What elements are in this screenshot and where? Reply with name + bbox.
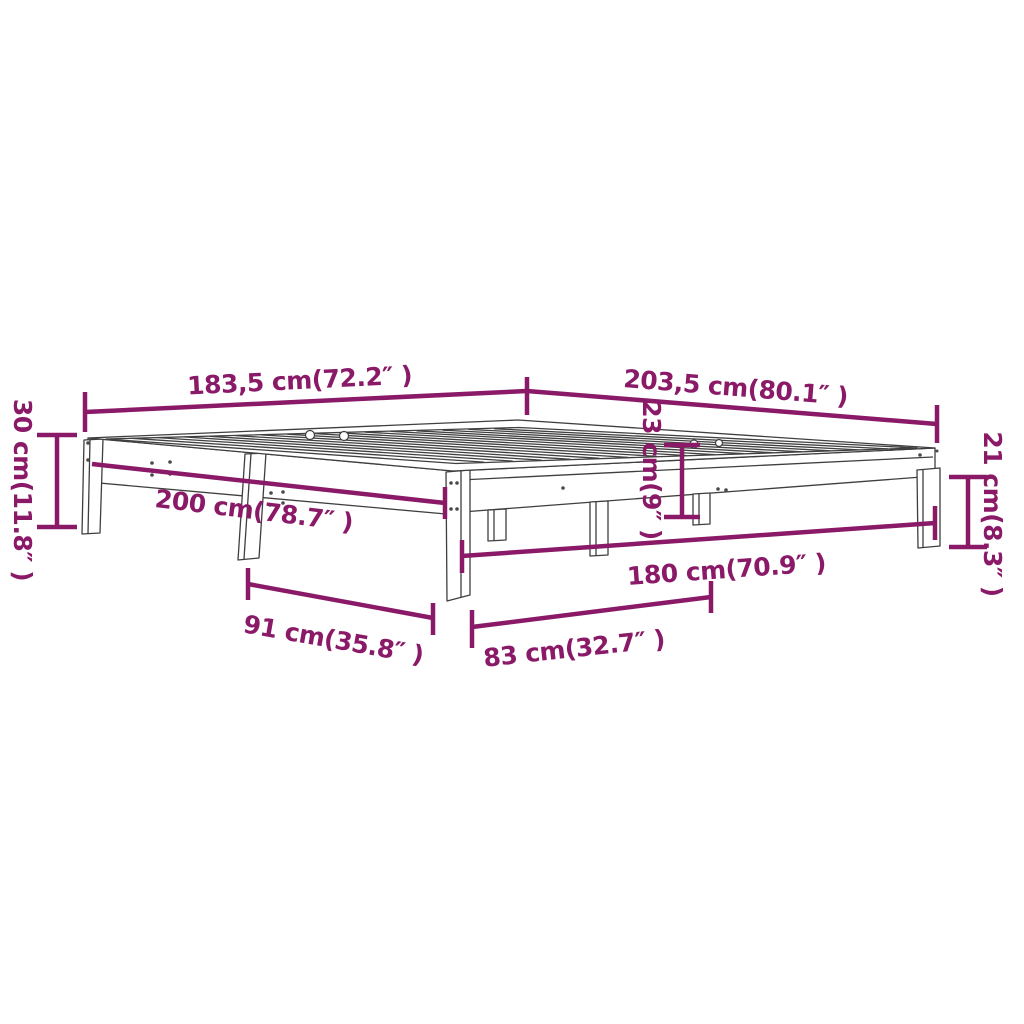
screw-dot xyxy=(86,441,90,445)
bed-leg-left-corner xyxy=(82,439,103,534)
screw-dot xyxy=(455,481,459,485)
dim-leg-spacing-side-label: 91 cm(35.8″ ) xyxy=(241,610,426,670)
dim-inner-width-label: 180 cm(70.9″ ) xyxy=(626,548,827,591)
bed-frame-dimension-diagram: 183,5 cm(72.2″ ) 203,5 cm(80.1″ ) 30 cm(… xyxy=(0,0,1024,1024)
screw-dot xyxy=(449,507,453,511)
bed-leg-front-corner xyxy=(446,470,470,601)
dim-overall-width-label: 183,5 cm(72.2″ ) xyxy=(186,361,412,401)
dowel-knob xyxy=(716,440,723,447)
diagram-canvas: 183,5 cm(72.2″ ) 203,5 cm(80.1″ ) 30 cm(… xyxy=(0,0,1024,1024)
dowel-knob xyxy=(306,431,315,440)
bed-leg-hidden-1 xyxy=(488,509,506,541)
screw-dot xyxy=(86,458,90,462)
dim-frame-depth-label: 23 cm(9″ ) xyxy=(637,400,666,539)
dim-total-height-label: 30 cm(11.8″ ) xyxy=(8,399,37,581)
dim-under-clearance-label: 21 cm(8.3″ ) xyxy=(978,431,1007,596)
dim-leg-spacing-front-label: 83 cm(32.7″ ) xyxy=(482,624,666,673)
screw-dot xyxy=(455,507,459,511)
dim-leg-spacing-front-line xyxy=(472,597,711,627)
dim-inner-width-line xyxy=(462,523,935,556)
screw-dot xyxy=(724,488,728,492)
screw-dot xyxy=(449,481,453,485)
screw-dot xyxy=(150,473,154,477)
dim-under-clearance: 21 cm(8.3″ ) xyxy=(949,431,1007,596)
dowel-knob xyxy=(340,432,349,441)
dim-total-height: 30 cm(11.8″ ) xyxy=(8,399,77,581)
screw-dot xyxy=(269,491,273,495)
dim-leg-spacing-side: 91 cm(35.8″ ) xyxy=(241,568,433,670)
dim-leg-spacing-front: 83 cm(32.7″ ) xyxy=(472,581,711,673)
screw-dot xyxy=(918,453,922,457)
screw-dot xyxy=(281,490,285,494)
bed-leg-hidden-3 xyxy=(693,493,710,525)
dimension-annotations: 183,5 cm(72.2″ ) 203,5 cm(80.1″ ) 30 cm(… xyxy=(8,361,1007,673)
screw-dot xyxy=(716,487,720,491)
screw-dot xyxy=(936,450,939,453)
dim-overall-width: 183,5 cm(72.2″ ) xyxy=(85,361,527,432)
screw-dot xyxy=(150,461,154,465)
screw-dot xyxy=(168,460,172,464)
screw-dot xyxy=(561,486,565,490)
dim-leg-spacing-side-line xyxy=(248,584,433,618)
